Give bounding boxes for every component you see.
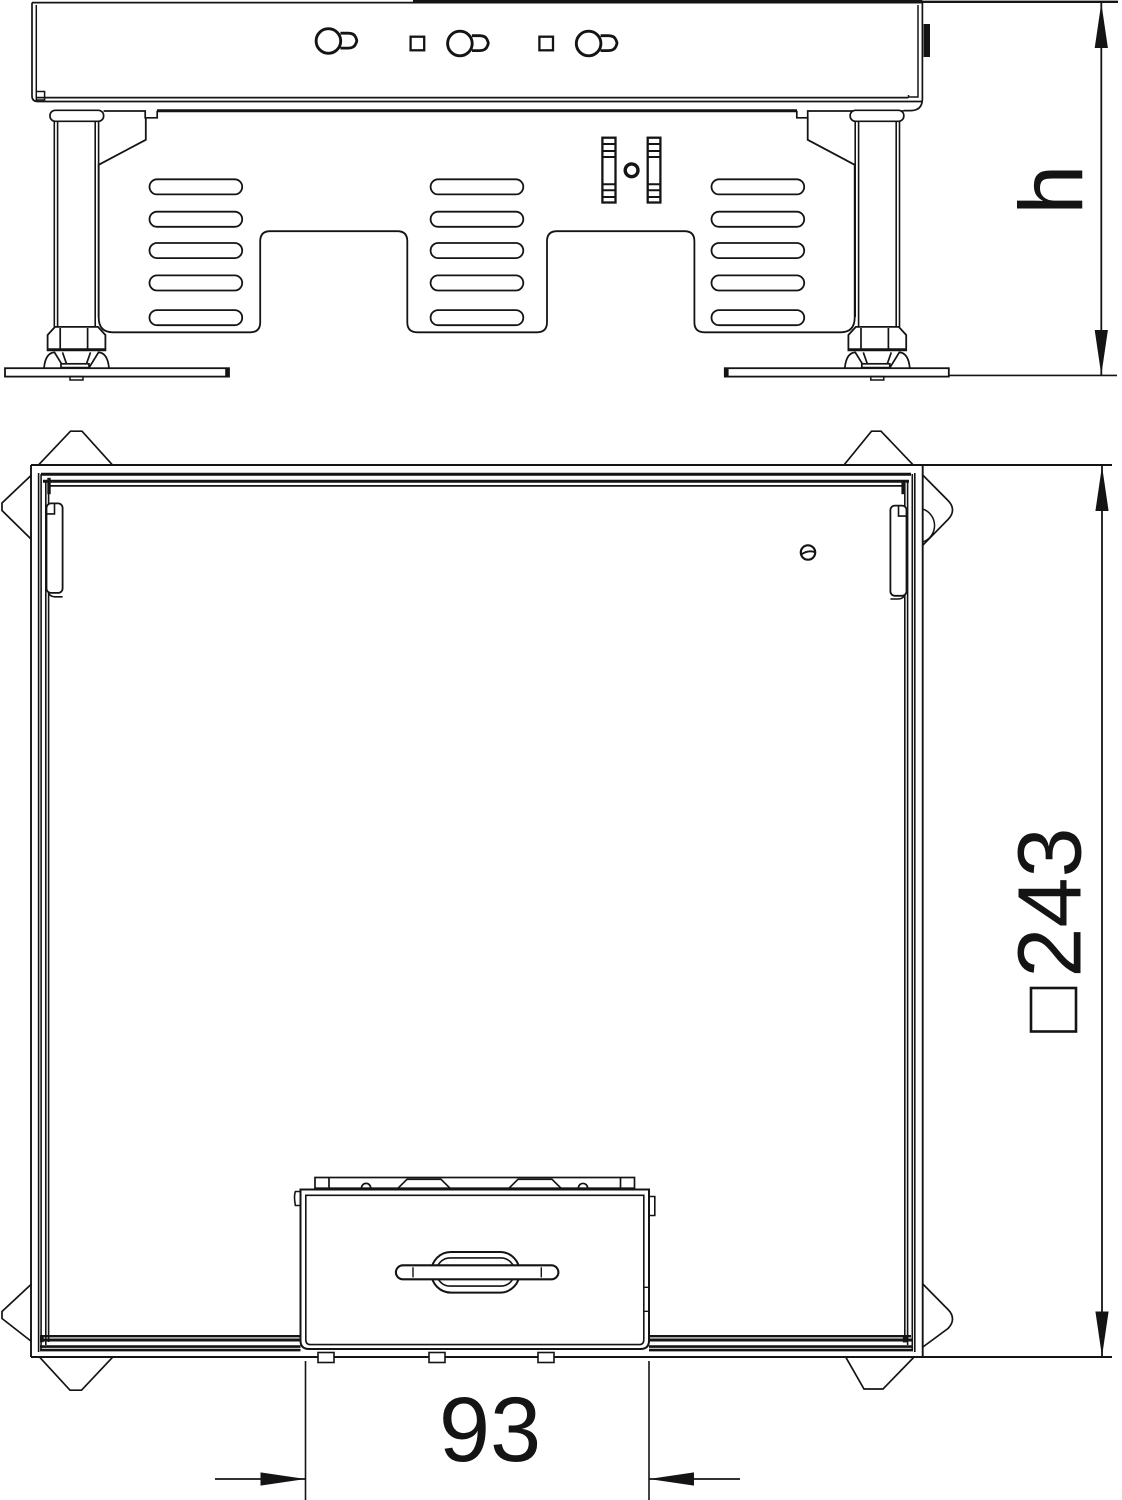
svg-text:93: 93: [439, 1379, 541, 1481]
svg-text:243: 243: [1000, 827, 1100, 977]
svg-text:h: h: [1003, 165, 1103, 215]
